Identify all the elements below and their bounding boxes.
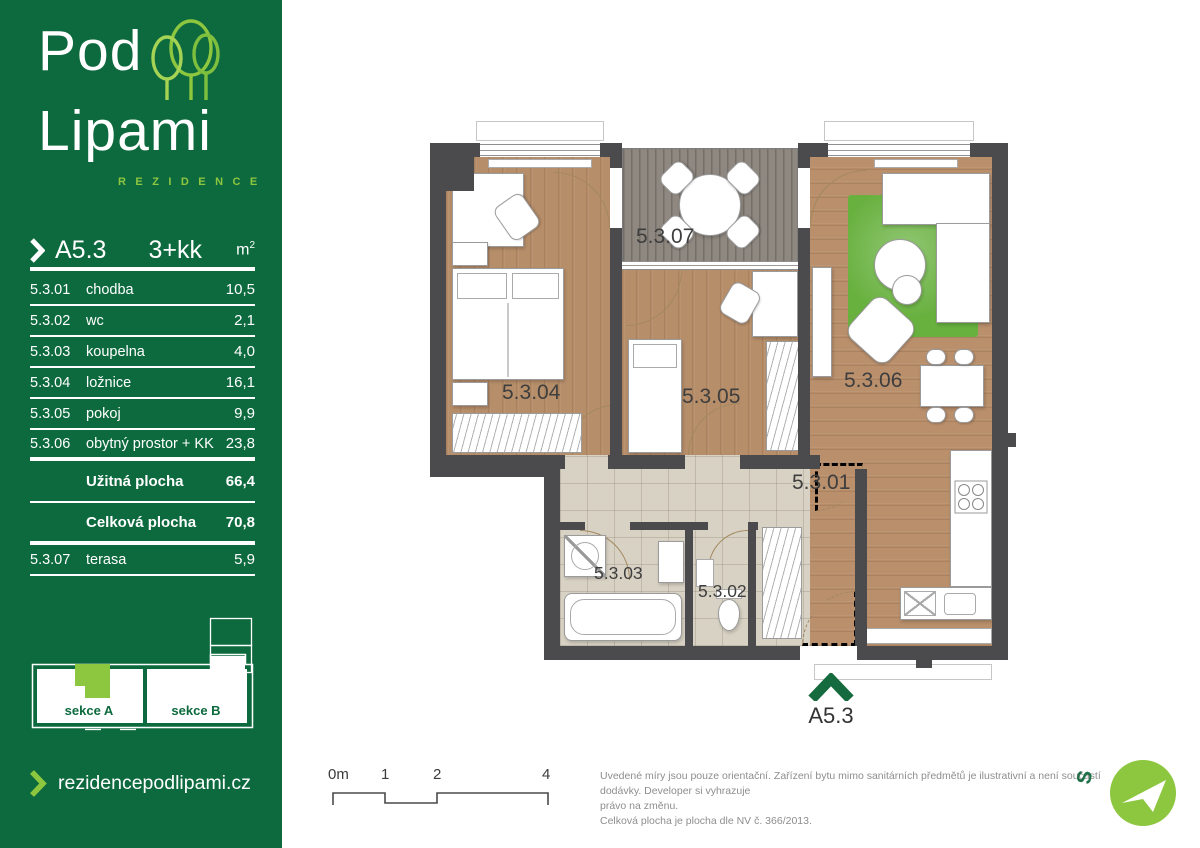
unit-header: A5.3 3+kk m2: [30, 233, 255, 271]
nightstand: [452, 242, 488, 266]
total-row-overall: Celková plocha 70,8: [30, 503, 255, 545]
sidebar: Pod Lipami R E Z I D E N C E A5.3 3+kk m…: [0, 0, 282, 848]
logo-text-lipami: Lipami: [38, 98, 212, 164]
section-a-label: sekce A: [65, 703, 114, 718]
balcony-outline: [824, 121, 974, 141]
room-name: chodba: [86, 282, 226, 298]
bathroom-sink: [658, 541, 684, 583]
total-label: Užitná plocha: [86, 473, 226, 490]
total-label: Celková plocha: [86, 514, 226, 531]
room-table: 5.3.01 chodba 10,5 5.3.02 wc 2,1 5.3.03 …: [30, 275, 255, 576]
total-row-usable: Užitná plocha 66,4: [30, 461, 255, 503]
scale-tick-4: 4: [542, 766, 550, 783]
cooktop: [954, 480, 988, 514]
room-name: wc: [86, 313, 234, 329]
plinth: [863, 628, 992, 644]
room-name: pokoj: [86, 406, 234, 422]
room-name: koupelna: [86, 344, 234, 360]
sofa: [882, 173, 990, 225]
entrance-arrow-icon: [808, 673, 854, 701]
brochure-page: Pod Lipami R E Z I D E N C E A5.3 3+kk m…: [0, 0, 1200, 848]
table-row: 5.3.04 ložnice 16,1: [30, 368, 255, 399]
room-code: 5.3.05: [30, 406, 86, 422]
room-name: ložnice: [86, 375, 226, 391]
table-row: 5.3.05 pokoj 9,9: [30, 399, 255, 430]
dining-table: [920, 365, 984, 407]
scale-tick-1: 1: [381, 766, 389, 783]
nightstand: [452, 382, 488, 406]
website-row[interactable]: rezidencepodlipami.cz: [30, 770, 251, 797]
website-link[interactable]: rezidencepodlipami.cz: [58, 772, 251, 795]
desk: [752, 271, 798, 337]
room-code: 5.3.02: [30, 313, 86, 329]
building-minimap[interactable]: sekce A sekce B: [25, 614, 275, 739]
terrace-row: 5.3.07 terasa 5,9: [30, 545, 255, 576]
room-label-wc: 5.3.02: [698, 581, 747, 602]
pillow: [457, 273, 507, 299]
sofa: [936, 223, 990, 323]
dining-chair: [926, 349, 946, 365]
room-area: 4,0: [234, 343, 255, 360]
room-area: 5,9: [234, 551, 255, 568]
scale-tick-0: 0m: [328, 766, 349, 783]
total-value: 70,8: [226, 514, 255, 531]
balcony-outline: [476, 121, 604, 141]
pillow: [633, 344, 677, 368]
hall-wardrobe: [762, 527, 802, 639]
room-area: 23,8: [226, 435, 255, 452]
room-code: 5.3.03: [30, 344, 86, 360]
room-area: 2,1: [234, 312, 255, 329]
room-name: obytný prostor + KK: [86, 436, 226, 452]
entrance-unit-label: A5.3: [798, 703, 864, 729]
side-table: [892, 275, 922, 305]
dining-chair: [926, 407, 946, 423]
chevron-right-icon: [30, 770, 47, 797]
chevron-right-icon: [30, 238, 45, 263]
room-label-living: 5.3.06: [844, 369, 902, 393]
room-code: 5.3.04: [30, 375, 86, 391]
wardrobe: [766, 341, 800, 451]
kitchen-sink: [944, 593, 976, 615]
room-label-bedroom: 5.3.04: [502, 381, 560, 405]
room-area: 10,5: [226, 281, 255, 298]
bathtub: [564, 593, 682, 641]
dining-chair: [954, 349, 974, 365]
radiator: [874, 159, 958, 168]
section-b-label: sekce B: [171, 703, 220, 718]
radiator: [488, 159, 592, 168]
table-row: 5.3.02 wc 2,1: [30, 306, 255, 337]
room-label-bathroom: 5.3.03: [594, 563, 643, 584]
room-label-terrace: 5.3.07: [636, 225, 694, 249]
unit-disposition: 3+kk: [148, 236, 202, 265]
room-area: 9,9: [234, 405, 255, 422]
scale-tick-2: 2: [433, 766, 441, 783]
kitchen-counter: [950, 450, 992, 587]
table-row: 5.3.06 obytný prostor + KK 23,8: [30, 430, 255, 461]
room-label-room: 5.3.05: [682, 385, 740, 409]
room-code: 5.3.01: [30, 282, 86, 298]
wardrobe: [452, 413, 582, 453]
trees-icon: [146, 16, 224, 106]
logo-subtitle: R E Z I D E N C E: [118, 176, 260, 188]
pillow: [512, 273, 559, 299]
terrace-french-window: [622, 261, 798, 270]
room-label-hall: 5.3.01: [792, 471, 850, 495]
disclaimer-text: Uvedené míry jsou pouze orientační. Zaří…: [600, 769, 1105, 829]
corner-cabinet: [904, 591, 936, 616]
total-value: 66,4: [226, 473, 255, 490]
room-code: 5.3.07: [30, 552, 86, 568]
logo-text-pod: Pod: [38, 18, 142, 84]
room-area: 16,1: [226, 374, 255, 391]
window: [480, 144, 600, 156]
plan-canvas: 5.3.04 5.3.07 5.3.05: [282, 0, 1200, 848]
cabinet: [812, 267, 832, 377]
room-name: terasa: [86, 552, 234, 568]
north-arrow-icon: [1108, 758, 1178, 828]
table-row: 5.3.03 koupelna 4,0: [30, 337, 255, 368]
area-unit-label: m2: [236, 240, 255, 259]
window: [828, 144, 970, 156]
scale-bar: [330, 788, 552, 810]
table-row: 5.3.01 chodba 10,5: [30, 275, 255, 306]
room-code: 5.3.06: [30, 436, 86, 452]
dining-chair: [954, 407, 974, 423]
floor-plan: 5.3.04 5.3.07 5.3.05: [430, 143, 1008, 743]
unit-id: A5.3: [55, 236, 106, 265]
